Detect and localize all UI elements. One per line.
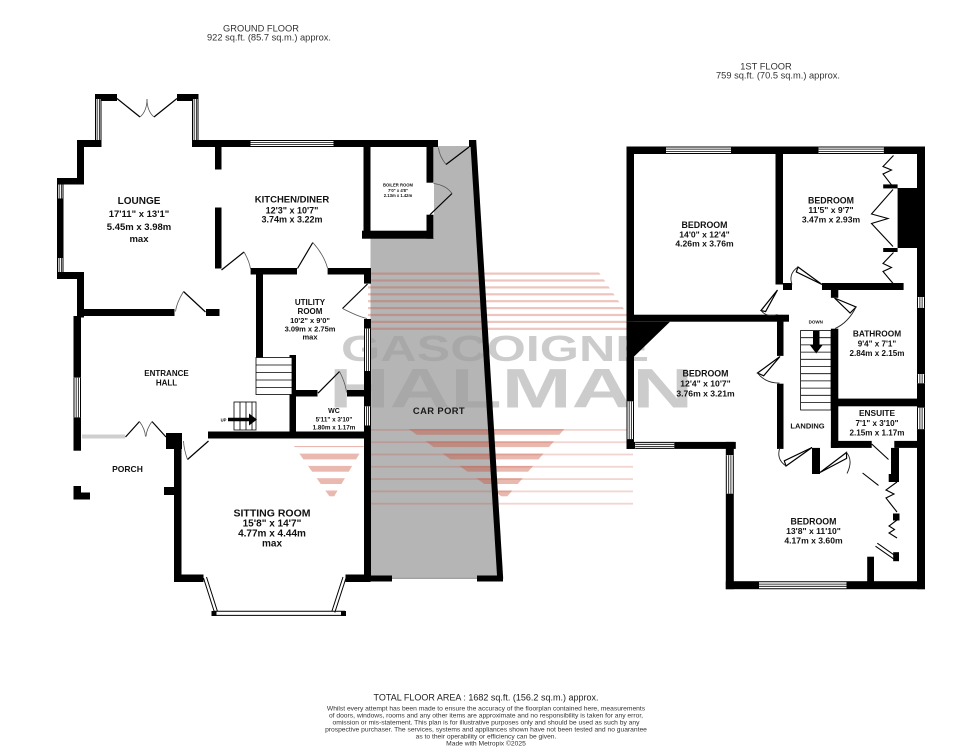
svg-text:LOUNGE: LOUNGE bbox=[118, 196, 161, 207]
svg-text:11'5" x 9'7": 11'5" x 9'7" bbox=[808, 205, 853, 215]
svg-text:3.74m x 3.22m: 3.74m x 3.22m bbox=[261, 215, 322, 225]
svg-text:5.45m x 3.98m: 5.45m x 3.98m bbox=[107, 222, 171, 233]
svg-text:759 sq.ft. (70.5 sq.m.) approx: 759 sq.ft. (70.5 sq.m.) approx. bbox=[716, 71, 840, 81]
svg-text:Whilst every attempt has been: Whilst every attempt has been made to en… bbox=[327, 706, 646, 713]
svg-text:LANDING: LANDING bbox=[790, 422, 824, 431]
svg-text:BATHROOM: BATHROOM bbox=[853, 329, 901, 339]
svg-text:as to their operability or eff: as to their operability or efficiency ca… bbox=[416, 734, 557, 741]
svg-text:BEDROOM: BEDROOM bbox=[683, 369, 729, 379]
svg-text:BEDROOM: BEDROOM bbox=[682, 220, 728, 230]
svg-text:13'8" x 11'10": 13'8" x 11'10" bbox=[786, 526, 841, 536]
svg-text:2.15m x 1.17m: 2.15m x 1.17m bbox=[850, 429, 905, 438]
svg-text:ROOM: ROOM bbox=[298, 307, 323, 316]
svg-text:9'4" x 7'1": 9'4" x 7'1" bbox=[858, 340, 897, 349]
svg-text:of doors, windows, rooms and a: of doors, windows, rooms and any other i… bbox=[329, 713, 643, 720]
svg-text:12'4" x 10'7": 12'4" x 10'7" bbox=[680, 379, 730, 389]
svg-text:ENTRANCE: ENTRANCE bbox=[144, 369, 189, 378]
svg-text:KITCHEN/DINER: KITCHEN/DINER bbox=[255, 195, 330, 206]
svg-text:7'1" x 3'10": 7'1" x 3'10" bbox=[855, 419, 898, 428]
svg-text:prospective purchaser. The ser: prospective purchaser. The services, sys… bbox=[325, 727, 647, 734]
svg-text:omission or mis-statement. Thi: omission or mis-statement. This plan is … bbox=[333, 720, 641, 727]
svg-text:max: max bbox=[302, 333, 318, 342]
svg-text:max: max bbox=[129, 234, 149, 245]
svg-text:4.26m x 3.76m: 4.26m x 3.76m bbox=[675, 239, 734, 249]
svg-text:2.13m x 1.42m: 2.13m x 1.42m bbox=[384, 193, 413, 198]
svg-text:2.84m x 2.15m: 2.84m x 2.15m bbox=[850, 349, 905, 358]
svg-text:1.80m x 1.17m: 1.80m x 1.17m bbox=[313, 425, 356, 432]
svg-text:Made with Metropix ©2025: Made with Metropix ©2025 bbox=[446, 740, 526, 748]
svg-text:ENSUITE: ENSUITE bbox=[859, 408, 895, 418]
svg-text:WC: WC bbox=[328, 408, 340, 415]
svg-text:BEDROOM: BEDROOM bbox=[808, 196, 854, 206]
svg-text:3.47m x 2.93m: 3.47m x 2.93m bbox=[802, 215, 861, 225]
svg-text:BEDROOM: BEDROOM bbox=[791, 517, 837, 527]
svg-text:TOTAL FLOOR AREA : 1682 sq.ft.: TOTAL FLOOR AREA : 1682 sq.ft. (156.2 sq… bbox=[374, 693, 599, 703]
svg-text:DOWN: DOWN bbox=[809, 320, 823, 325]
svg-text:PORCH: PORCH bbox=[112, 464, 143, 474]
svg-text:CAR PORT: CAR PORT bbox=[413, 405, 465, 416]
svg-text:HALL: HALL bbox=[156, 379, 177, 388]
svg-text:BOILER ROOM: BOILER ROOM bbox=[383, 183, 414, 188]
svg-text:922 sq.ft. (85.7 sq.m.) approx: 922 sq.ft. (85.7 sq.m.) approx. bbox=[207, 33, 331, 43]
svg-text:3.76m x 3.21m: 3.76m x 3.21m bbox=[676, 389, 735, 399]
svg-text:UP: UP bbox=[221, 418, 227, 423]
svg-text:17'11" x 13'1": 17'11" x 13'1" bbox=[109, 209, 170, 220]
svg-text:UTILITY: UTILITY bbox=[295, 298, 326, 307]
svg-text:4.17m x 3.60m: 4.17m x 3.60m bbox=[784, 536, 843, 546]
svg-text:max: max bbox=[262, 539, 282, 550]
svg-text:5'11" x 3'10": 5'11" x 3'10" bbox=[316, 417, 353, 424]
